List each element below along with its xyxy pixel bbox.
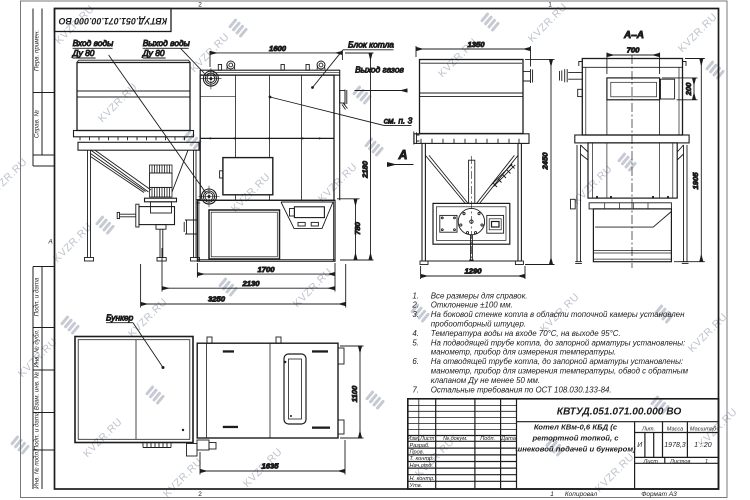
svg-text:1700: 1700 <box>257 265 275 274</box>
svg-text:1: 1 <box>548 2 552 9</box>
svg-text:1350: 1350 <box>467 40 485 49</box>
svg-text:см. п. 3: см. п. 3 <box>384 116 413 126</box>
svg-text:Температура воды на входе 70°С: Температура воды на входе 70°С, на выход… <box>431 329 621 338</box>
svg-text:1905: 1905 <box>691 172 700 190</box>
svg-text:700: 700 <box>627 46 641 55</box>
svg-text:Масштаб: Масштаб <box>690 427 717 433</box>
svg-text:Все размеры для справок.: Все размеры для справок. <box>431 291 528 300</box>
svg-text:Выход воды: Выход воды <box>143 38 190 48</box>
svg-text:Блок котла: Блок котла <box>348 40 394 50</box>
svg-text:1978,3: 1978,3 <box>664 442 686 449</box>
svg-text:1: 1 <box>705 459 708 465</box>
svg-text:200: 200 <box>684 82 693 97</box>
svg-text:Изм.: Изм. <box>407 436 419 442</box>
svg-text:Разраб.: Разраб. <box>410 443 430 449</box>
svg-text:1635: 1635 <box>261 462 279 471</box>
svg-text:Вход воды: Вход воды <box>73 38 114 48</box>
svg-text:Подп.: Подп. <box>480 436 495 442</box>
svg-text:Пров.: Пров. <box>410 450 425 456</box>
svg-text:3.: 3. <box>412 310 419 319</box>
svg-text:2: 2 <box>198 2 202 9</box>
svg-text:№ докум.: № докум. <box>443 436 468 442</box>
svg-text:Остальные требования по ОСТ 10: Остальные требования по ОСТ 108.030.133-… <box>431 385 612 394</box>
svg-text:780: 780 <box>353 221 362 235</box>
svg-text:Подп. и дата: Подп. и дата <box>33 411 40 450</box>
svg-text:А: А <box>397 148 407 162</box>
svg-text:Н. контр.: Н. контр. <box>410 476 435 482</box>
svg-text:ретортной топкой, с: ретортной топкой, с <box>531 433 619 442</box>
svg-text:Взам. инв. №: Взам. инв. № <box>33 372 40 411</box>
svg-text:клапаном Ду не менее 50 мм.: клапаном Ду не менее 50 мм. <box>431 376 540 385</box>
svg-text:2180: 2180 <box>360 160 369 179</box>
svg-text:А: А <box>47 239 52 246</box>
svg-text:Инв. № подл.: Инв. № подл. <box>33 450 40 488</box>
svg-text:На подводящей трубе котла, до: На подводящей трубе котла, до запорной а… <box>431 338 685 347</box>
svg-text:2.: 2. <box>411 301 419 310</box>
svg-text:Лит.: Лит. <box>641 427 655 433</box>
svg-text:Ду 80: Ду 80 <box>142 48 165 58</box>
svg-text:Дата: Дата <box>500 436 516 442</box>
svg-text:5.: 5. <box>412 338 419 347</box>
svg-text:2450: 2450 <box>540 152 549 171</box>
svg-text:Справ. №: Справ. № <box>33 110 40 138</box>
svg-text:Утв.: Утв. <box>409 483 423 489</box>
svg-text:Масса: Масса <box>667 427 684 433</box>
svg-text:6.: 6. <box>412 357 419 366</box>
svg-text:Подп. и дата: Подп. и дата <box>33 277 40 316</box>
svg-text:4.: 4. <box>412 329 419 338</box>
svg-text:1.: 1. <box>412 291 419 300</box>
svg-text:Котел КВм-0,6 КБД (с: Котел КВм-0,6 КБД (с <box>534 422 618 431</box>
svg-text:1100: 1100 <box>350 385 359 402</box>
svg-text:пробоотборный штуцер.: пробоотборный штуцер. <box>431 320 526 329</box>
svg-text:Нач.отд.: Нач.отд. <box>410 463 434 469</box>
svg-text:КВТУД.051.071.00.000 ВО: КВТУД.051.071.00.000 ВО <box>557 407 682 418</box>
svg-text:На отводящей трубе котла, до з: На отводящей трубе котла, до запорной ар… <box>431 357 683 366</box>
svg-text:манометр, прибор для измерения: манометр, прибор для измерения температу… <box>431 367 689 376</box>
svg-text:Копировал: Копировал <box>565 491 598 498</box>
svg-text:1: 1 <box>550 491 554 498</box>
svg-text:На боковой стенке котла в обла: На боковой стенке котла в области топочн… <box>431 310 685 319</box>
svg-text:Выход газов: Выход газов <box>355 65 404 75</box>
svg-text:шнековой подачей и бункером): шнековой подачей и бункером) <box>515 445 636 454</box>
svg-text:1 : 20: 1 : 20 <box>694 442 712 449</box>
svg-text:КВТУД.051.071.00.000 ВО: КВТУД.051.071.00.000 ВО <box>59 16 168 26</box>
svg-text:1600: 1600 <box>269 44 287 53</box>
svg-text:Листов: Листов <box>669 459 690 465</box>
svg-text:2130: 2130 <box>241 279 260 288</box>
svg-text:Перв. примен.: Перв. примен. <box>33 30 40 71</box>
svg-text:Лист: Лист <box>643 459 659 465</box>
svg-text:Ду 80: Ду 80 <box>72 48 95 58</box>
svg-text:Лист: Лист <box>419 436 435 442</box>
svg-text:7.: 7. <box>412 385 419 394</box>
svg-text:2: 2 <box>198 491 202 498</box>
svg-text:Отклонение ±100 мм.: Отклонение ±100 мм. <box>431 301 513 310</box>
svg-text:Бункер: Бункер <box>106 313 134 323</box>
svg-text:манометр, прибор для измерения: манометр, прибор для измерения температу… <box>431 348 616 357</box>
svg-text:Инв. № дубл.: Инв. № дубл. <box>33 329 40 367</box>
svg-text:1290: 1290 <box>464 267 482 276</box>
svg-text:Т. контр.: Т. контр. <box>410 456 434 462</box>
svg-text:А–А: А–А <box>623 30 644 41</box>
svg-text:3250: 3250 <box>208 295 226 304</box>
svg-text:Формат А3: Формат А3 <box>641 491 677 498</box>
